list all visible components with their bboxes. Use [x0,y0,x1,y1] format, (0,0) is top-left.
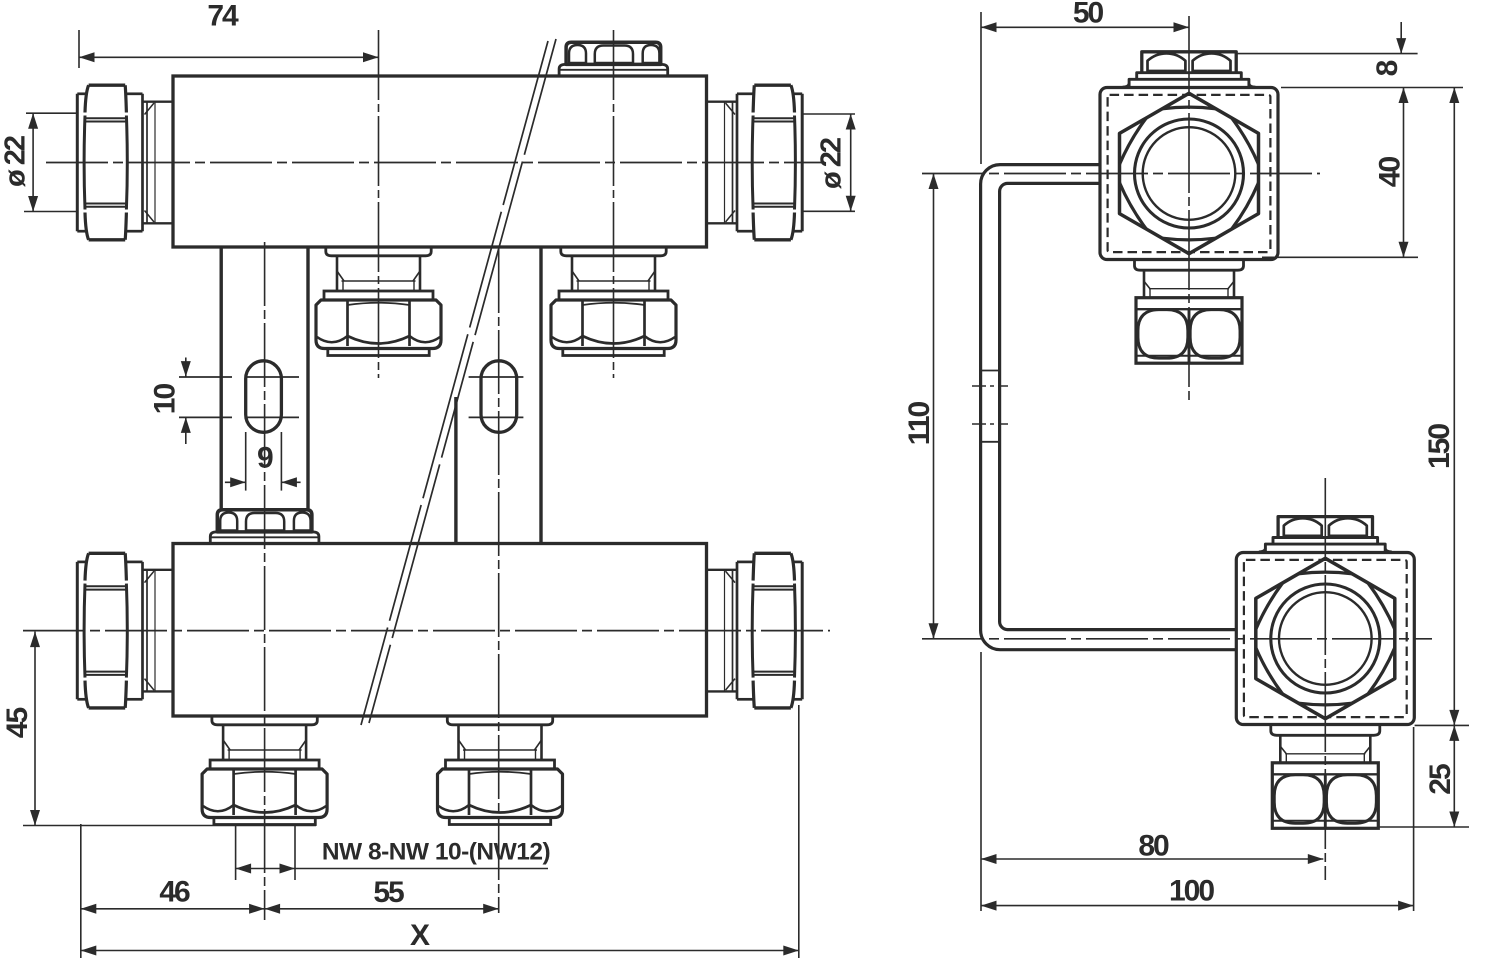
svg-text:8: 8 [1371,60,1404,76]
svg-text:55: 55 [373,876,404,909]
svg-text:9: 9 [257,442,273,475]
svg-text:74: 74 [207,0,239,33]
svg-text:100: 100 [1169,875,1214,908]
svg-text:ø 22: ø 22 [0,136,32,187]
svg-text:80: 80 [1138,830,1169,863]
svg-text:NW 8-NW 10-(NW12): NW 8-NW 10-(NW12) [322,839,550,866]
svg-text:150: 150 [1423,424,1456,469]
svg-text:40: 40 [1374,157,1407,188]
svg-text:110: 110 [903,401,936,445]
svg-text:45: 45 [1,708,34,739]
svg-text:X: X [410,919,430,952]
svg-text:50: 50 [1073,0,1104,30]
svg-text:ø 22: ø 22 [816,138,848,189]
svg-text:10: 10 [149,384,182,415]
svg-text:46: 46 [159,876,190,909]
svg-text:25: 25 [1424,764,1457,795]
